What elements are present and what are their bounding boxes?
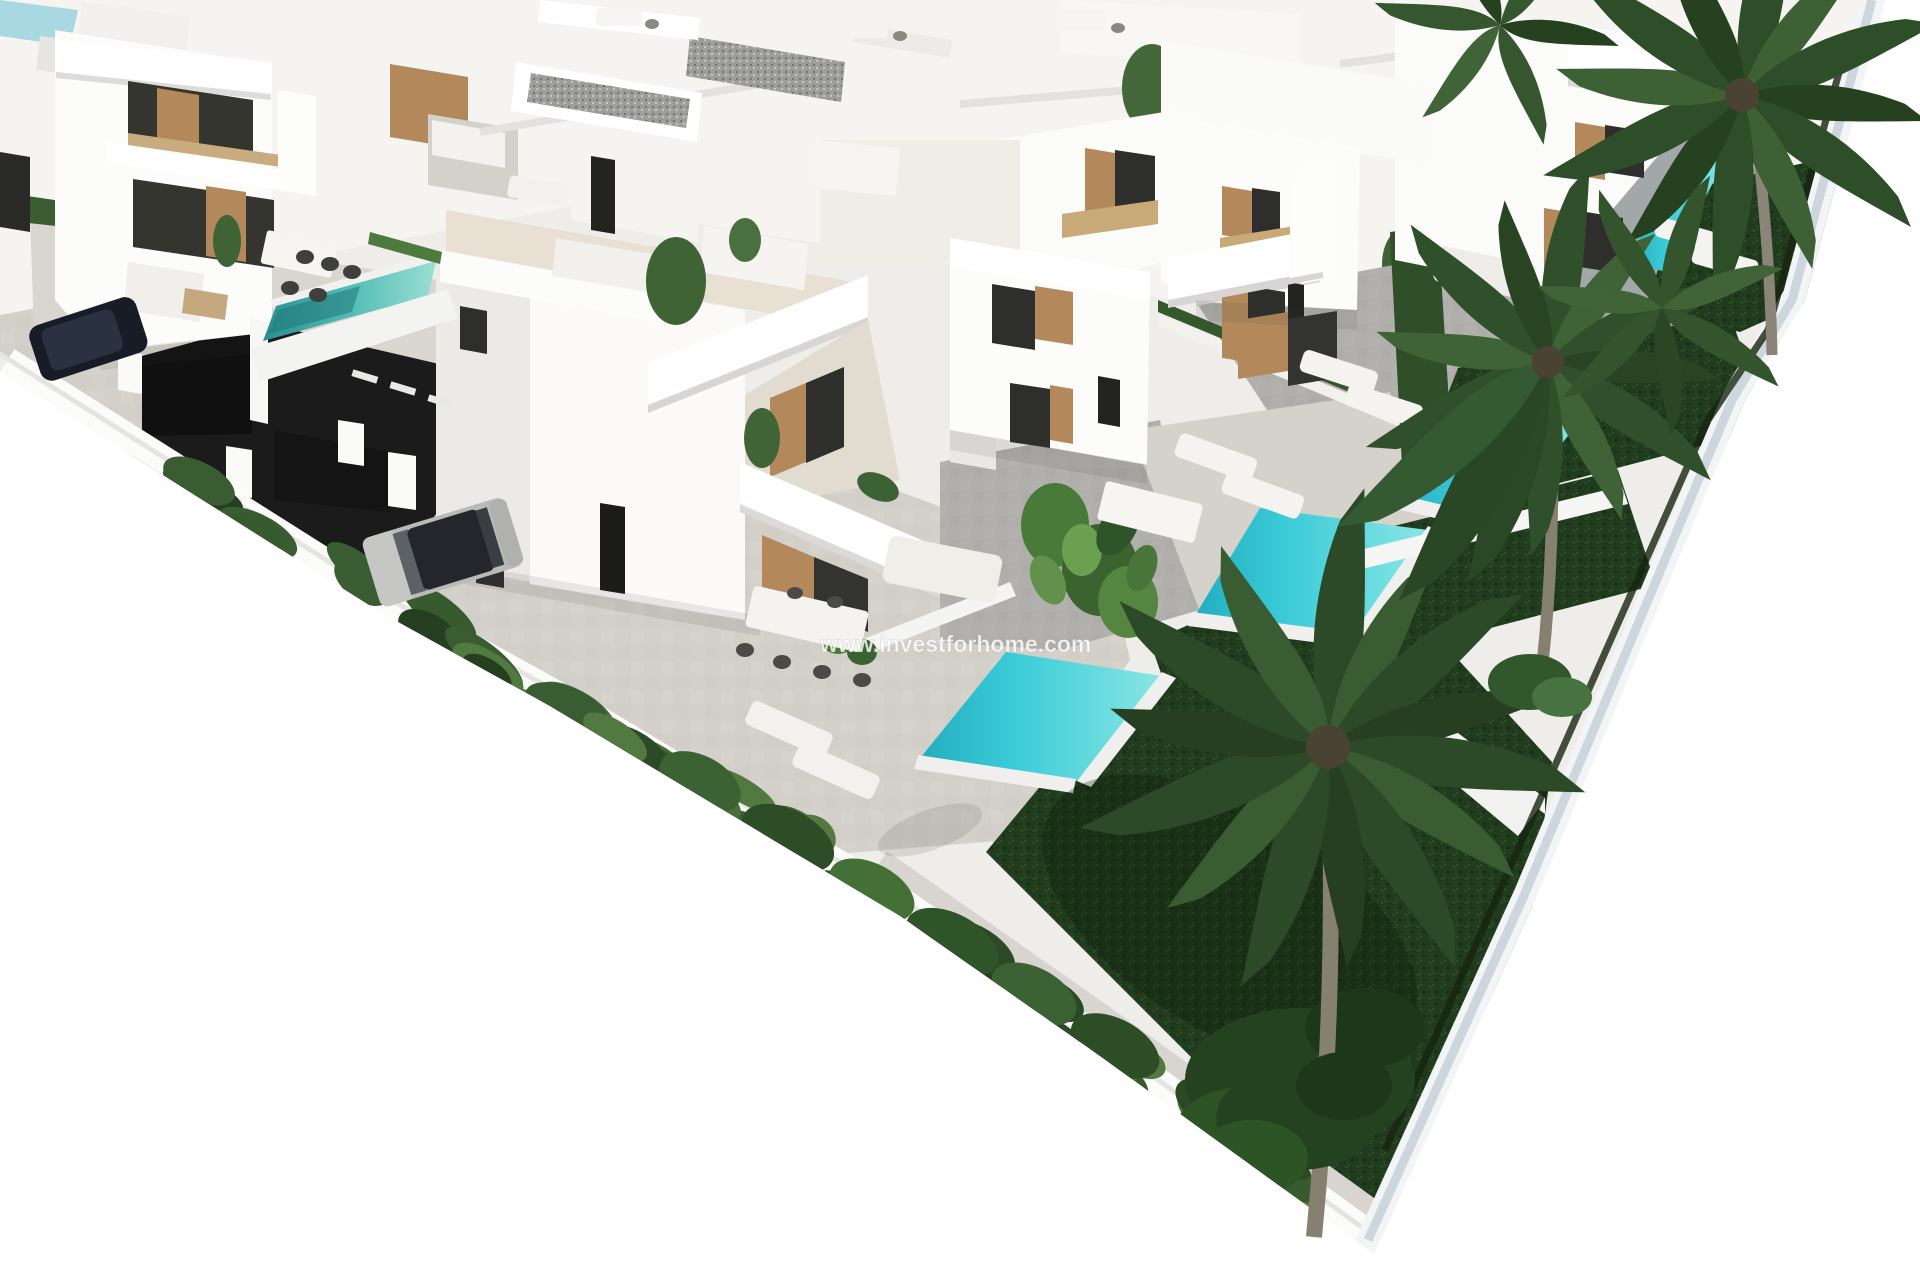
svg-text:www.investforhome.com: www.investforhome.com [819, 631, 1091, 657]
